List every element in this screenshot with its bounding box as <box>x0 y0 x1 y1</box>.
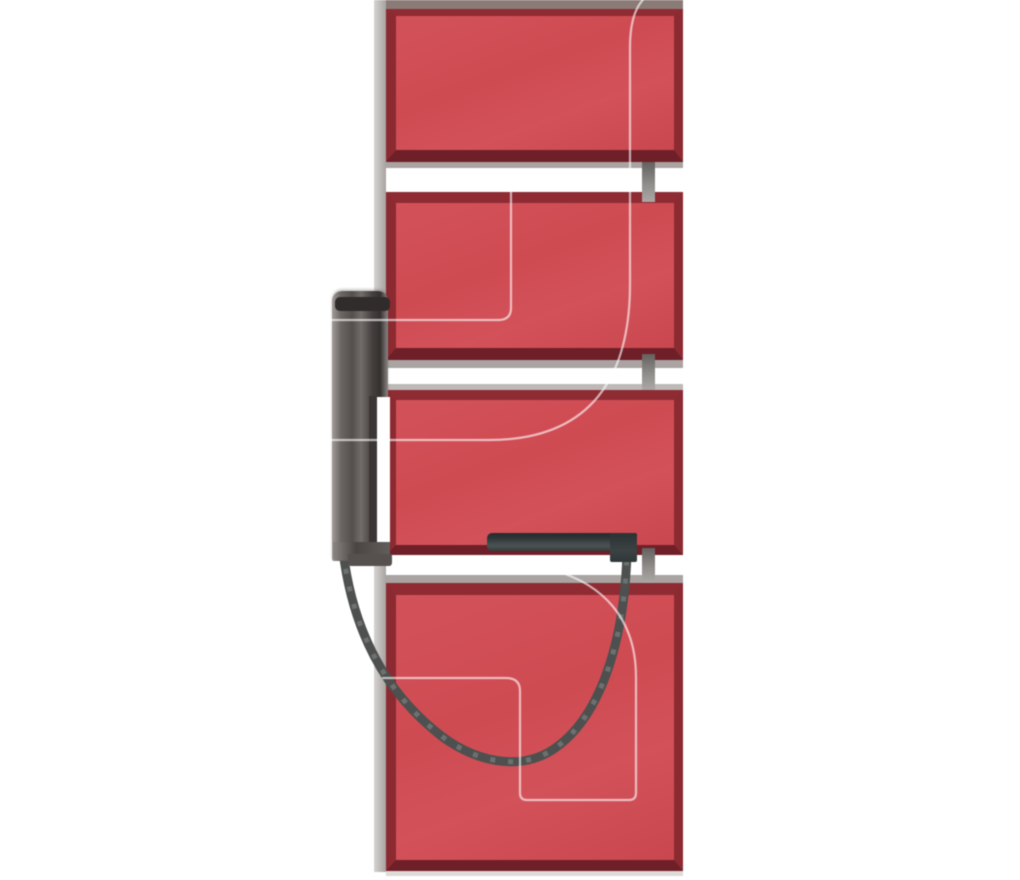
panel-gap-strip-3 <box>386 360 683 368</box>
element-bar-cable-socket <box>610 533 637 562</box>
handle-cap <box>335 297 390 311</box>
product-image <box>0 0 1020 880</box>
gap-connector-1 <box>642 162 655 202</box>
radiator-scene <box>0 0 1020 880</box>
gap-connector-3 <box>642 548 655 583</box>
panel-gap-strip-6 <box>386 871 683 876</box>
radiator-panel-3 <box>386 390 683 555</box>
handle-gap-highlight <box>377 397 390 545</box>
gap-connector-2 <box>642 354 655 390</box>
handle-rod <box>369 396 376 548</box>
radiator-panel-4 <box>386 583 683 871</box>
handle-foot-step <box>348 554 392 566</box>
panel-gap-strip-5 <box>386 575 683 583</box>
panel-gap-strip-2 <box>386 162 683 168</box>
radiator-panel-1 <box>386 9 683 162</box>
panel-gap-strip-1 <box>386 0 683 9</box>
radiator-panel-2 <box>386 192 683 360</box>
